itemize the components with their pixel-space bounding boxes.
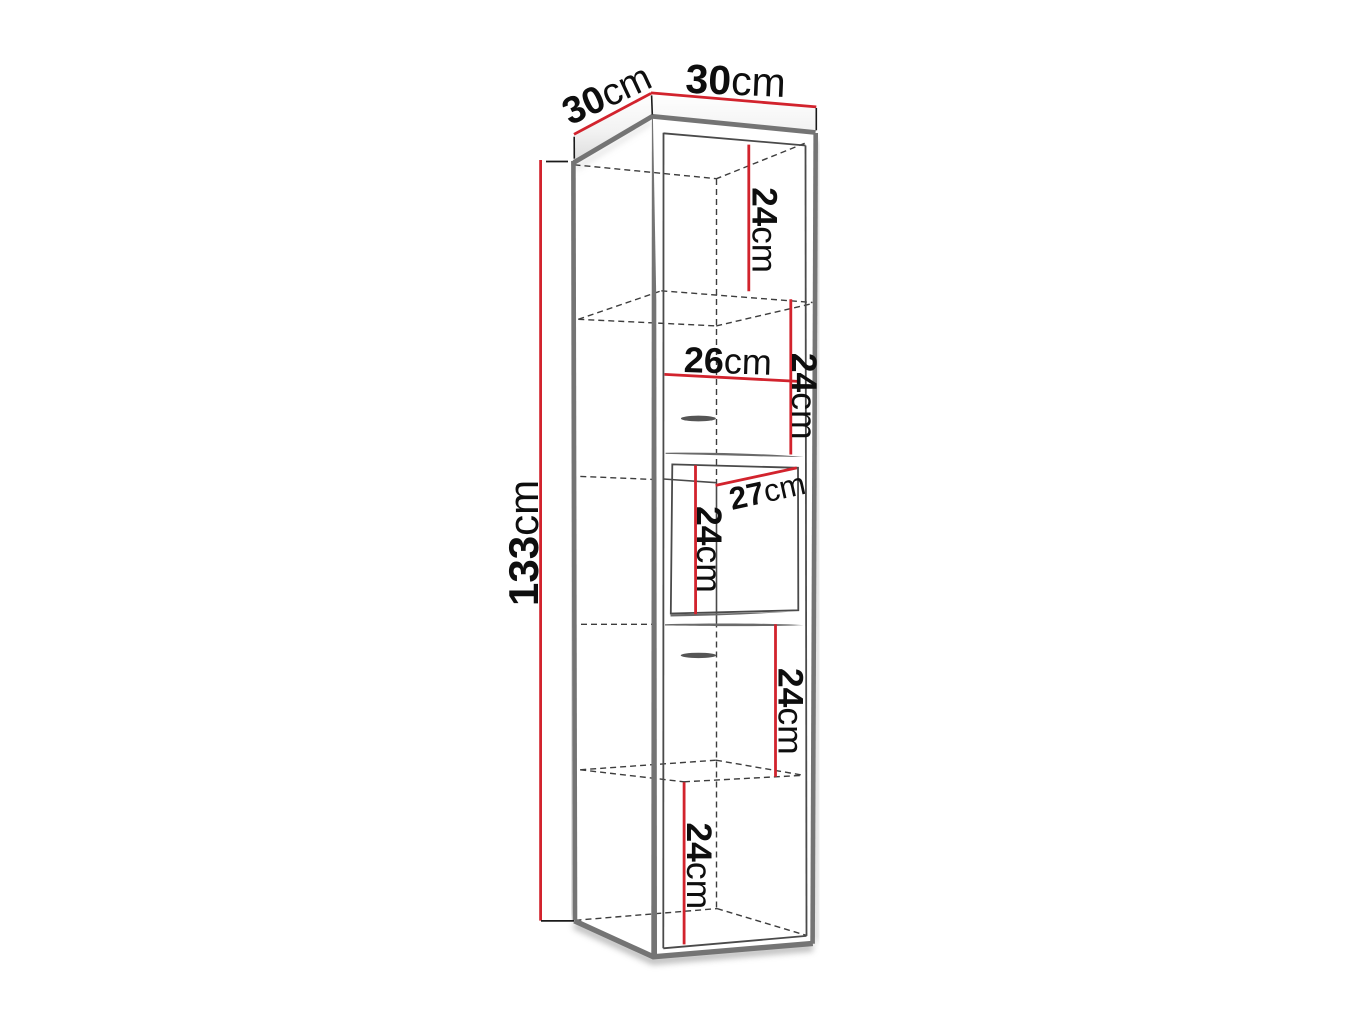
svg-text:24cm: 24cm (689, 506, 729, 593)
svg-text:24cm: 24cm (744, 187, 783, 273)
svg-text:30cm: 30cm (685, 56, 787, 106)
svg-text:26cm: 26cm (683, 339, 772, 383)
svg-text:133cm: 133cm (500, 480, 547, 606)
svg-text:24cm: 24cm (771, 668, 811, 755)
svg-text:24cm: 24cm (679, 822, 719, 909)
svg-text:24cm: 24cm (784, 353, 824, 440)
